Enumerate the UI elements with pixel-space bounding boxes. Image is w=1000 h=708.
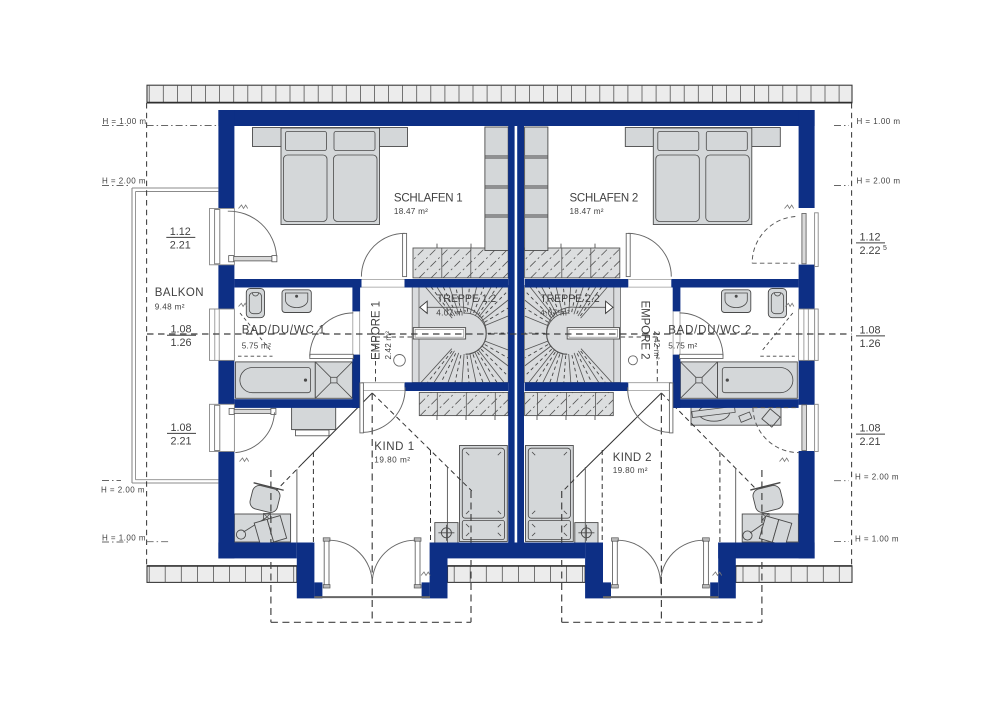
svg-text:2.42 m²: 2.42 m² — [384, 331, 393, 360]
svg-text:H = 2.00 m: H = 2.00 m — [102, 176, 146, 185]
svg-text:5: 5 — [883, 245, 887, 252]
svg-text:EMPORE 1: EMPORE 1 — [370, 301, 382, 360]
svg-text:9.48 m²: 9.48 m² — [155, 303, 185, 312]
svg-text:SCHLAFEN 2: SCHLAFEN 2 — [570, 192, 639, 204]
svg-text:2.21: 2.21 — [860, 436, 882, 448]
svg-text:5.75 m²: 5.75 m² — [242, 341, 271, 350]
svg-text:19.80 m²: 19.80 m² — [374, 455, 410, 464]
svg-text:5.75 m²: 5.75 m² — [668, 341, 697, 350]
svg-text:1.12: 1.12 — [860, 231, 882, 243]
svg-text:H = 2.00 m: H = 2.00 m — [855, 473, 899, 482]
svg-text:2.21: 2.21 — [171, 435, 193, 447]
svg-text:1.12: 1.12 — [170, 226, 192, 238]
svg-text:BAD/DU/WC 2: BAD/DU/WC 2 — [668, 324, 752, 336]
svg-text:TREPPE 1.2: TREPPE 1.2 — [437, 293, 497, 305]
svg-text:KIND 2: KIND 2 — [613, 452, 652, 464]
svg-text:BAD/DU/WC 1: BAD/DU/WC 1 — [242, 324, 326, 336]
svg-text:1.08: 1.08 — [860, 324, 882, 336]
svg-text:H = 2.00 m: H = 2.00 m — [857, 176, 901, 185]
svg-text:2.42 m²: 2.42 m² — [652, 331, 661, 360]
svg-text:1.08: 1.08 — [171, 422, 193, 434]
svg-text:2.22: 2.22 — [860, 245, 882, 257]
svg-text:H = 1.00 m: H = 1.00 m — [102, 534, 146, 543]
svg-text:4.07 m²: 4.07 m² — [540, 309, 570, 318]
svg-text:1.08: 1.08 — [860, 423, 882, 435]
svg-text:H = 1.00 m: H = 1.00 m — [103, 117, 147, 126]
svg-text:4.07 m²: 4.07 m² — [436, 309, 466, 318]
svg-text:KIND 1: KIND 1 — [374, 441, 414, 453]
svg-text:BALKON: BALKON — [155, 287, 204, 299]
svg-text:2.21: 2.21 — [170, 239, 192, 251]
svg-text:H = 2.00 m: H = 2.00 m — [101, 485, 145, 494]
svg-text:EMPORE 2: EMPORE 2 — [639, 301, 651, 360]
svg-text:1.26: 1.26 — [860, 338, 882, 350]
svg-text:18.47 m²: 18.47 m² — [394, 207, 428, 216]
svg-text:H = 1.00 m: H = 1.00 m — [855, 535, 899, 544]
svg-text:SCHLAFEN 1: SCHLAFEN 1 — [394, 192, 463, 204]
svg-text:H = 1.00 m: H = 1.00 m — [857, 117, 901, 126]
svg-text:1.08: 1.08 — [171, 324, 193, 336]
svg-text:1.26: 1.26 — [171, 337, 193, 349]
svg-text:19.80 m²: 19.80 m² — [613, 466, 648, 475]
svg-text:18.47 m²: 18.47 m² — [570, 207, 604, 216]
svg-text:TREPPE 2.2: TREPPE 2.2 — [540, 293, 600, 305]
